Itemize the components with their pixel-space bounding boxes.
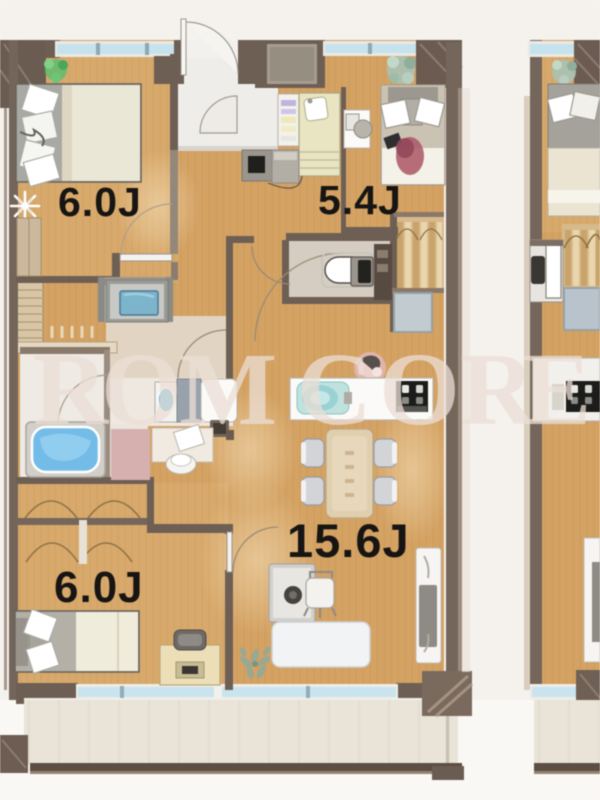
svg-text:6.0J: 6.0J xyxy=(58,179,142,225)
svg-text:R: R xyxy=(33,332,110,447)
svg-text:6.0J: 6.0J xyxy=(54,563,144,612)
svg-text:5.4J: 5.4J xyxy=(318,177,402,223)
svg-text:O: O xyxy=(379,332,460,447)
svg-text:O: O xyxy=(101,332,182,447)
svg-text:E: E xyxy=(522,332,591,447)
svg-text:15.6J: 15.6J xyxy=(287,514,410,567)
svg-text:C: C xyxy=(297,332,372,447)
svg-text:M: M xyxy=(179,332,277,447)
